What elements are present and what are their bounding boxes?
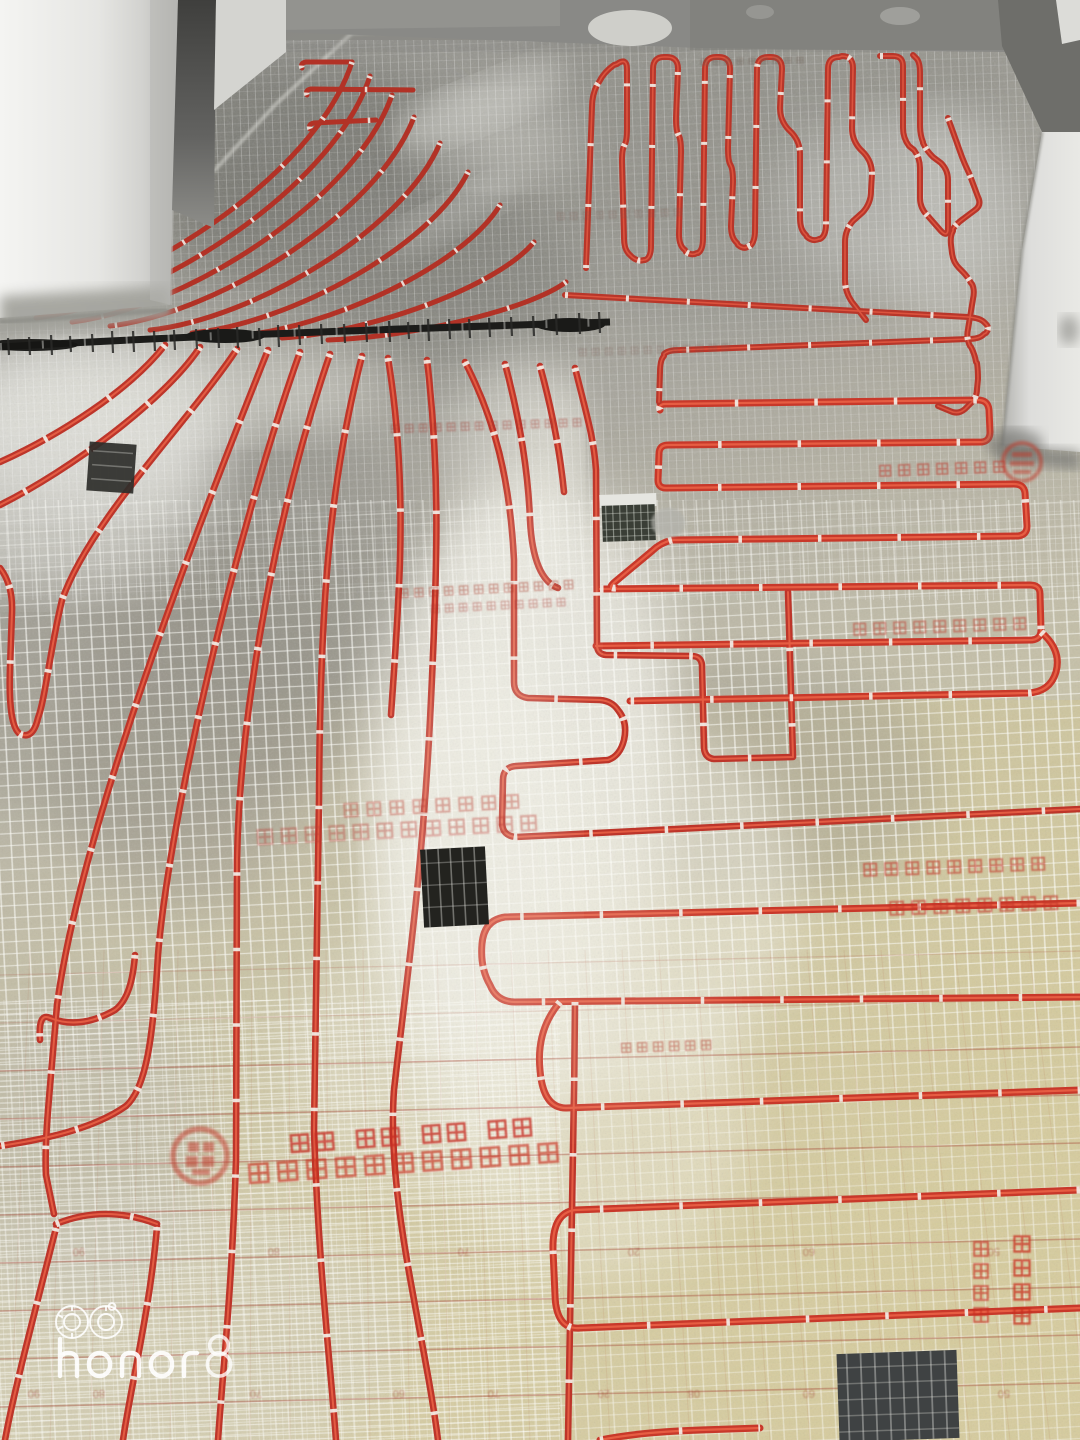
svg-text:70: 70 <box>249 1387 262 1399</box>
svg-text:90: 90 <box>27 1387 40 1399</box>
svg-text:50: 50 <box>997 1387 1010 1399</box>
svg-text:70: 70 <box>487 1387 500 1399</box>
svg-text:60: 60 <box>802 1387 815 1399</box>
svg-text:60: 60 <box>802 1245 815 1257</box>
svg-text:20: 20 <box>627 1245 640 1257</box>
svg-text:50: 50 <box>987 1245 1000 1257</box>
svg-text:90: 90 <box>72 1245 85 1257</box>
svg-text:70: 70 <box>457 1245 470 1257</box>
svg-text:08: 08 <box>687 1387 700 1399</box>
svg-text:80: 80 <box>92 1387 105 1399</box>
svg-text:80: 80 <box>267 1245 280 1257</box>
svg-text:20: 20 <box>597 1387 610 1399</box>
svg-text:60: 60 <box>392 1387 405 1399</box>
